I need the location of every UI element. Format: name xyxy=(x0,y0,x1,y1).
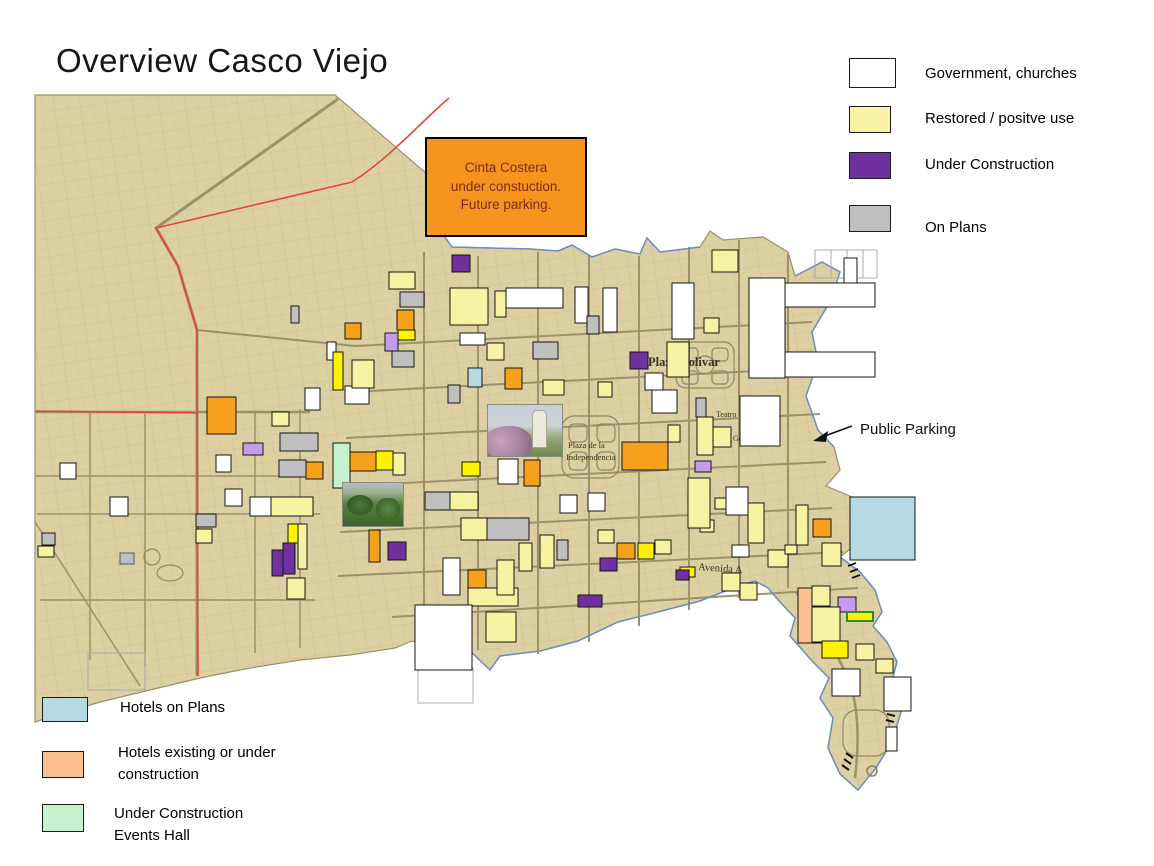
map-building xyxy=(524,460,540,486)
photo-foliage xyxy=(487,426,532,457)
map-building xyxy=(598,382,612,397)
map-building xyxy=(603,288,617,332)
map-building xyxy=(291,306,299,323)
legend-swatch-hotels-existing xyxy=(42,751,84,778)
map-building xyxy=(279,460,306,477)
map-building xyxy=(672,283,694,339)
map-building xyxy=(732,545,749,557)
legend-swatch-events-hall xyxy=(42,804,84,832)
map-building xyxy=(557,540,568,560)
map-building xyxy=(578,595,602,607)
map-building xyxy=(832,669,860,696)
map-building xyxy=(884,677,911,711)
map-building xyxy=(243,443,263,455)
map-building xyxy=(272,412,289,426)
map-building xyxy=(461,518,487,540)
legend-swatch-under-construction xyxy=(849,152,891,179)
map-place-label: Independencia xyxy=(566,452,616,462)
map-building xyxy=(450,288,488,325)
map-building xyxy=(398,330,415,340)
map-building xyxy=(196,529,212,543)
map-building xyxy=(856,644,874,660)
map-building xyxy=(876,659,893,673)
map-building xyxy=(722,573,740,591)
legend-label-government: Government, churches xyxy=(925,63,1077,84)
cathedral-photo xyxy=(487,404,563,457)
map-building xyxy=(415,605,472,670)
map-building xyxy=(462,462,480,476)
map-building xyxy=(600,558,617,571)
map-building xyxy=(196,514,216,527)
map-building xyxy=(617,543,635,559)
map-building xyxy=(288,524,298,543)
map-building xyxy=(749,278,785,378)
map-building xyxy=(42,533,55,545)
map-building xyxy=(60,463,76,479)
map-building xyxy=(345,386,369,404)
map-building xyxy=(352,360,374,388)
page-title: Overview Casco Viejo xyxy=(56,42,388,80)
legend-label-events-hall-1: Under Construction xyxy=(114,803,243,824)
park-photo xyxy=(342,482,404,527)
map-building xyxy=(533,342,558,359)
map-building xyxy=(225,489,242,506)
map-building xyxy=(498,459,518,484)
map-building xyxy=(369,530,380,562)
map-building xyxy=(667,342,689,377)
map-building xyxy=(392,351,414,367)
legend-swatch-hotels-plans xyxy=(42,697,88,722)
map-building xyxy=(385,333,398,351)
map-building xyxy=(207,397,236,434)
map-building xyxy=(813,519,831,537)
map-building xyxy=(785,545,797,554)
map-building xyxy=(506,288,563,308)
map-building xyxy=(696,398,706,417)
map-building xyxy=(448,385,460,403)
callout-line: Future parking. xyxy=(427,196,585,215)
legend-label-hotels-existing-2: construction xyxy=(118,764,199,785)
map-building xyxy=(645,373,663,390)
photo-tree-blob xyxy=(347,495,373,515)
map-building xyxy=(468,368,482,387)
map-building xyxy=(306,462,323,479)
map-building xyxy=(588,493,605,511)
map-building xyxy=(272,550,283,576)
legend-swatch-government xyxy=(849,58,896,88)
map-building xyxy=(844,258,857,283)
map-building xyxy=(389,272,415,289)
map-building xyxy=(543,380,564,395)
map-building xyxy=(850,497,915,560)
map-place-label: Teatro xyxy=(716,410,736,419)
map-building xyxy=(505,368,522,389)
map-building xyxy=(497,560,514,595)
map-building xyxy=(785,283,875,307)
map-building xyxy=(652,390,677,413)
map-building xyxy=(519,543,532,571)
map-building xyxy=(587,316,599,334)
map-building xyxy=(298,524,307,569)
legend-swatch-on-plans xyxy=(849,205,891,232)
legend-label-events-hall-2: Events Hall xyxy=(114,825,190,846)
public-parking-label: Public Parking xyxy=(860,421,956,438)
map-building xyxy=(697,417,713,455)
map-building xyxy=(443,558,460,595)
map-place-label: Plaza de la xyxy=(568,440,605,450)
map-building xyxy=(388,542,406,560)
map-building xyxy=(350,452,376,471)
map-building xyxy=(250,497,271,516)
map-building xyxy=(740,396,780,446)
map-building xyxy=(400,292,424,307)
map-building xyxy=(283,543,295,574)
map-building xyxy=(393,453,405,475)
map-building xyxy=(695,461,711,472)
map-building xyxy=(740,583,757,600)
map-building xyxy=(495,291,506,317)
map-building xyxy=(847,612,873,621)
legend-label-on-plans: On Plans xyxy=(925,217,987,238)
map-building xyxy=(838,597,856,612)
map-building xyxy=(305,388,320,410)
map-building xyxy=(688,478,710,528)
map-building xyxy=(287,578,305,599)
map-building xyxy=(345,323,361,339)
map-building xyxy=(713,427,731,447)
photo-cathedral-tower xyxy=(532,410,547,448)
map-building xyxy=(575,287,588,323)
casco-viejo-map: Plaza BolivarTeatroGobiernoPlaza de laIn… xyxy=(0,0,1154,866)
map-building xyxy=(668,425,680,442)
map-building xyxy=(748,503,764,543)
legend-label-restored: Restored / positve use xyxy=(925,108,1074,129)
map-building xyxy=(560,495,577,513)
map-building xyxy=(376,451,393,470)
legend-swatch-restored xyxy=(849,106,891,133)
map-building xyxy=(487,343,504,360)
map-building xyxy=(452,255,470,272)
map-building xyxy=(812,607,840,642)
map-building xyxy=(271,497,313,516)
map-building xyxy=(425,492,450,510)
map-building xyxy=(886,727,897,751)
map-building xyxy=(812,586,830,606)
callout-line: under constuction. xyxy=(427,178,585,197)
map-building xyxy=(487,518,529,540)
legend-label-hotels-plans: Hotels on Plans xyxy=(120,697,225,718)
map-building xyxy=(460,333,485,345)
map-building xyxy=(712,250,738,272)
map-building xyxy=(486,612,516,642)
map-building xyxy=(638,543,654,559)
map-building xyxy=(450,492,478,510)
map-building xyxy=(216,455,231,472)
map-building xyxy=(726,487,748,515)
legend-label-hotels-existing-1: Hotels existing or under xyxy=(118,742,276,763)
map-building xyxy=(655,540,671,554)
map-building xyxy=(822,641,848,658)
photo-tree-blob xyxy=(376,498,400,520)
map-building xyxy=(468,570,486,588)
map-building xyxy=(785,352,875,377)
map-building xyxy=(540,535,554,568)
map-building xyxy=(704,318,719,333)
map-building xyxy=(822,543,841,566)
map-building xyxy=(796,505,808,545)
map-building xyxy=(280,433,318,451)
callout-line: Cinta Costera xyxy=(427,159,585,178)
cinta-costera-callout: Cinta Costera under constuction. Future … xyxy=(425,137,587,237)
map-building xyxy=(622,442,668,470)
legend-label-under-construction: Under Construction xyxy=(925,154,1054,175)
map-building xyxy=(110,497,128,516)
map-building xyxy=(38,546,54,557)
map-building xyxy=(676,570,689,580)
map-building xyxy=(333,352,343,390)
map-building xyxy=(598,530,614,543)
map-building xyxy=(397,310,414,330)
map-building xyxy=(630,352,648,369)
